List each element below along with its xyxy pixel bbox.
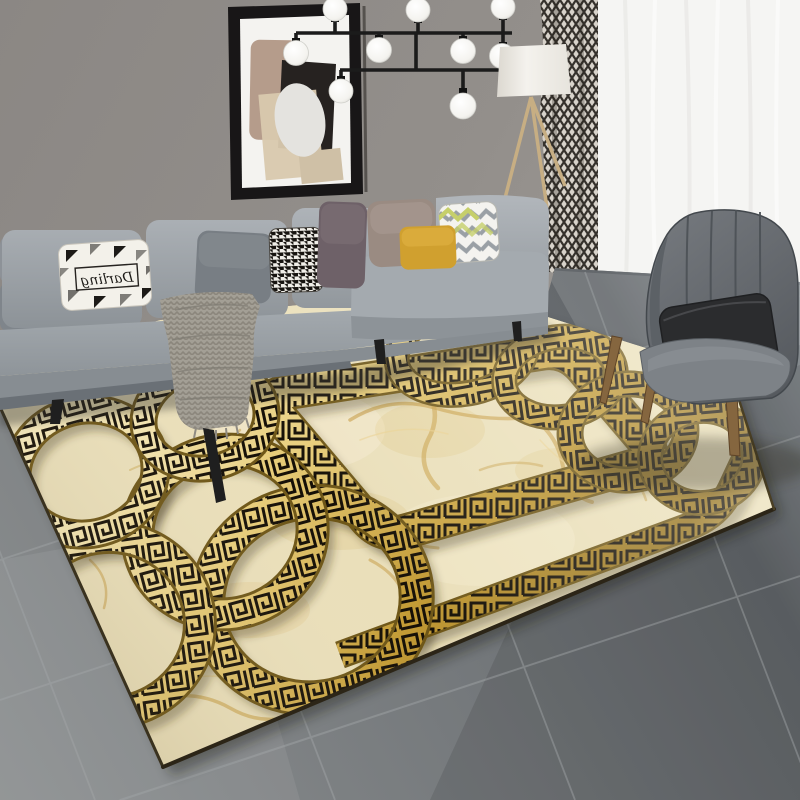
pillow-darling: Darling: [58, 239, 155, 311]
lamp-shade: [497, 44, 571, 97]
living-room-photo: Darling: [0, 0, 800, 800]
pillow-mustard: [399, 225, 456, 270]
pillow-mauve: [317, 201, 368, 289]
patterned-curtain: [540, 0, 602, 275]
scene-canvas: Darling: [0, 0, 800, 800]
pillow-houndstooth: [269, 227, 323, 293]
